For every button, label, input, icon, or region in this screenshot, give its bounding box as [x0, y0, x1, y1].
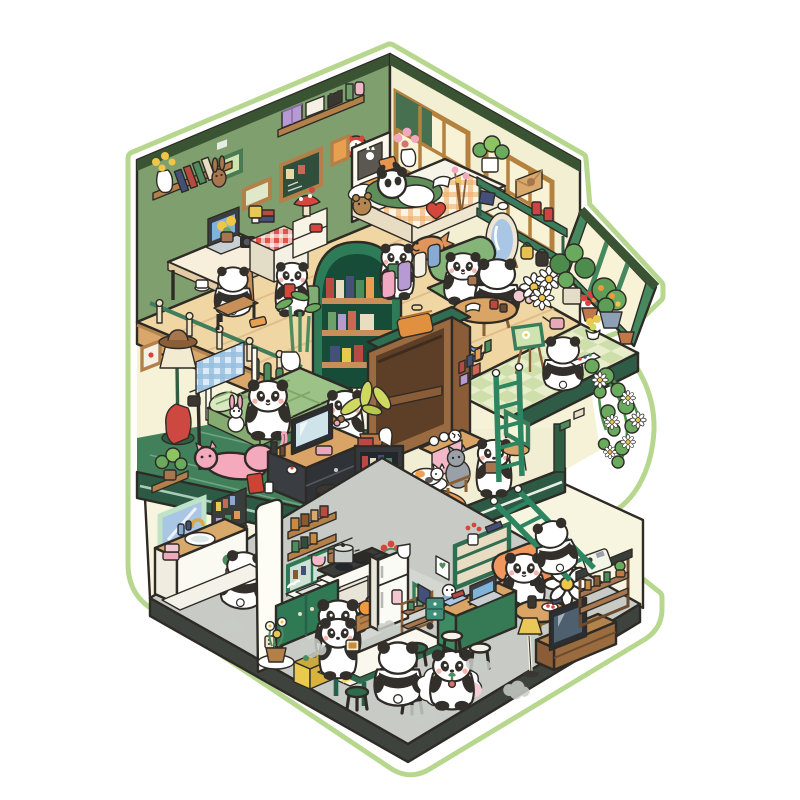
small-frame: [332, 136, 348, 165]
dining-panda: [372, 641, 425, 705]
bunny-plush: [212, 156, 226, 187]
terracotta-pot: [618, 332, 634, 344]
panda-house-illustration: [0, 0, 800, 800]
illustration-canvas: [0, 0, 800, 800]
red-coat: [166, 404, 191, 444]
teal-drawers: [426, 598, 444, 620]
coffee-cup: [195, 280, 209, 291]
toy-car: [310, 224, 322, 232]
